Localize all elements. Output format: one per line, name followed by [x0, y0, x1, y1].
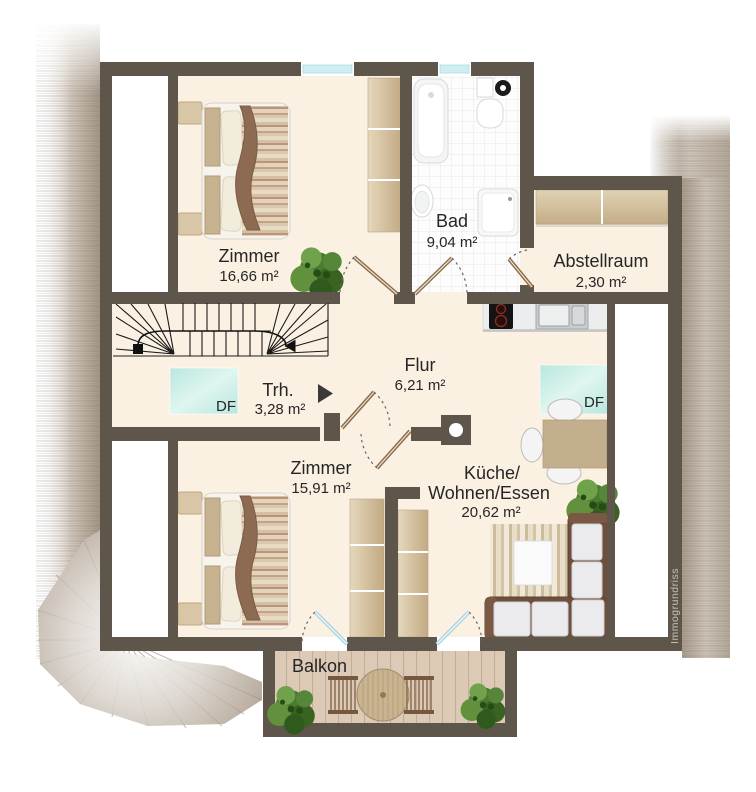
room-label-flur-area: 6,21 m²: [395, 377, 446, 394]
knee-strip-bottom-left: [112, 441, 168, 637]
room-label-bad-area: 9,04 m²: [427, 234, 478, 251]
watermark-text: Immogrundriss: [669, 568, 681, 644]
cooktop: [489, 302, 513, 329]
skylight-label-stairwell: DF: [216, 398, 236, 415]
washbasin: [411, 185, 433, 217]
balcony-table: [357, 668, 409, 722]
skylight-label-kitchen: DF: [584, 394, 604, 411]
dining-table: [543, 420, 607, 468]
kitchen-sink: [536, 302, 588, 329]
dining-chair: [521, 428, 543, 462]
coffee-table: [514, 541, 552, 585]
exterior-gap: [534, 40, 668, 176]
room-label-kueche-line2: Wohnen/Essen: [428, 483, 550, 503]
room-label-balkon: Balkon: [292, 656, 347, 676]
dining-chair: [548, 399, 582, 421]
chimney-flue: [449, 423, 463, 437]
window: [301, 62, 354, 76]
knee-strip-right: [615, 304, 668, 637]
room-label-zimmer-top-name: Zimmer: [219, 246, 280, 266]
room-label-treppenhaus-area: 3,28 m²: [255, 401, 306, 418]
room-label-zimmer-bottom-name: Zimmer: [291, 458, 352, 478]
storage-cabinet: [536, 190, 668, 227]
room-label-abstellraum-area: 2,30 m²: [576, 274, 627, 291]
room-label-kueche-line1: Küche/: [464, 463, 520, 483]
bathtub: [414, 79, 448, 163]
room-label-flur-name: Flur: [405, 355, 436, 375]
wardrobe: [368, 78, 402, 232]
window: [438, 62, 471, 76]
floorplan-drawing: Zimmer 16,66 m² Bad 9,04 m² Abstellraum …: [0, 0, 756, 792]
shower: [478, 189, 518, 236]
room-label-kueche-area: 20,62 m²: [461, 504, 520, 521]
room-label-treppenhaus-name: Trh.: [262, 380, 293, 400]
knee-strip-top-left: [112, 76, 168, 292]
room-label-zimmer-bottom-area: 15,91 m²: [291, 480, 350, 497]
floorplan-page: Zimmer 16,66 m² Bad 9,04 m² Abstellraum …: [0, 0, 756, 792]
room-label-bad-name: Bad: [436, 211, 468, 231]
room-label-abstellraum-name: Abstellraum: [553, 251, 648, 271]
kitchen-counter: [483, 300, 608, 332]
room-label-zimmer-top-area: 16,66 m²: [219, 268, 278, 285]
